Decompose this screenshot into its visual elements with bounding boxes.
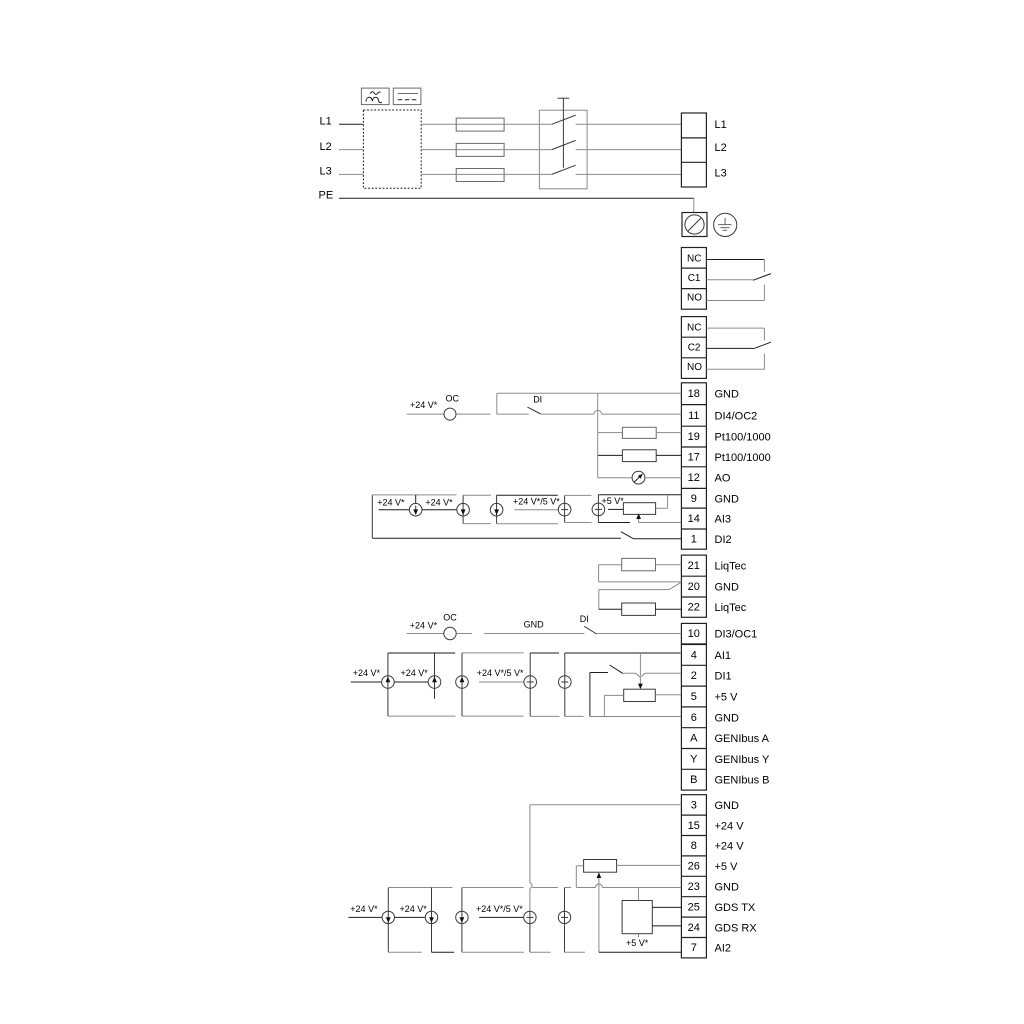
svg-text:8: 8 — [691, 840, 697, 852]
svg-text:+24 V*: +24 V* — [350, 904, 378, 914]
svg-text:26: 26 — [688, 861, 700, 873]
svg-text:B: B — [690, 774, 697, 786]
svg-text:15: 15 — [688, 820, 700, 832]
svg-text:GND: GND — [715, 800, 740, 812]
svg-text:+24 V*: +24 V* — [377, 498, 405, 508]
svg-text:DI1: DI1 — [715, 671, 732, 683]
svg-text:+5 V: +5 V — [715, 692, 739, 704]
svg-text:9: 9 — [691, 493, 697, 505]
svg-text:5: 5 — [691, 691, 697, 703]
svg-text:DI: DI — [580, 614, 589, 624]
svg-text:+24 V: +24 V — [715, 820, 745, 832]
svg-text:25: 25 — [688, 901, 700, 913]
svg-text:21: 21 — [688, 560, 700, 572]
svg-text:A: A — [690, 733, 698, 745]
svg-text:1: 1 — [691, 534, 697, 546]
svg-text:GND: GND — [715, 712, 740, 724]
svg-text:GDS RX: GDS RX — [715, 922, 758, 934]
svg-text:+24 V*/5 V*: +24 V*/5 V* — [476, 904, 523, 914]
svg-text:AI1: AI1 — [715, 650, 732, 662]
svg-text:+5 V*: +5 V* — [602, 496, 625, 506]
svg-text:4: 4 — [691, 649, 697, 661]
svg-text:GENIbus Y: GENIbus Y — [715, 754, 770, 766]
svg-text:L1: L1 — [715, 119, 727, 131]
svg-text:OC: OC — [443, 612, 457, 622]
svg-text:23: 23 — [688, 881, 700, 893]
svg-text:DI4/OC2: DI4/OC2 — [715, 410, 758, 422]
svg-text:+24 V*/5 V*: +24 V*/5 V* — [477, 668, 524, 678]
svg-text:Pt100/1000: Pt100/1000 — [715, 452, 771, 464]
svg-text:+24 V*: +24 V* — [353, 668, 381, 678]
svg-text:LiqTec: LiqTec — [715, 561, 747, 573]
svg-text:C1: C1 — [688, 273, 701, 284]
svg-text:GND: GND — [715, 493, 740, 505]
svg-text:+24 V*: +24 V* — [425, 498, 453, 508]
svg-text:+5 V*: +5 V* — [626, 938, 649, 948]
svg-text:18: 18 — [688, 388, 700, 400]
svg-text:+24 V*: +24 V* — [410, 621, 438, 631]
svg-text:24: 24 — [688, 922, 700, 934]
svg-text:GDS TX: GDS TX — [715, 902, 756, 914]
svg-text:AI3: AI3 — [715, 514, 732, 526]
svg-text:PE: PE — [319, 190, 334, 202]
svg-text:GND: GND — [715, 882, 740, 894]
svg-text:7: 7 — [691, 942, 697, 954]
svg-text:14: 14 — [688, 513, 700, 525]
svg-text:GND: GND — [715, 582, 740, 594]
svg-text:L2: L2 — [320, 141, 332, 153]
svg-text:20: 20 — [688, 581, 700, 593]
svg-text:L2: L2 — [715, 142, 727, 154]
svg-text:2: 2 — [691, 670, 697, 682]
svg-text:3: 3 — [691, 799, 697, 811]
svg-text:+5 V: +5 V — [715, 861, 739, 873]
svg-text:DI2: DI2 — [715, 534, 732, 546]
svg-text:17: 17 — [688, 451, 700, 463]
svg-text:L3: L3 — [320, 166, 332, 178]
svg-text:22: 22 — [688, 602, 700, 614]
svg-text:+24 V*: +24 V* — [410, 400, 438, 410]
svg-text:Pt100/1000: Pt100/1000 — [715, 432, 771, 444]
svg-text:AI2: AI2 — [715, 943, 732, 955]
svg-text:GENIbus B: GENIbus B — [715, 775, 770, 787]
svg-text:GND: GND — [524, 620, 545, 630]
svg-text:DI3/OC1: DI3/OC1 — [715, 629, 758, 641]
svg-text:19: 19 — [688, 431, 700, 443]
svg-text:10: 10 — [688, 628, 700, 640]
svg-text:NC: NC — [687, 323, 701, 334]
svg-text:GENIbus A: GENIbus A — [715, 733, 770, 745]
svg-text:NC: NC — [687, 253, 701, 264]
svg-text:12: 12 — [688, 472, 700, 484]
svg-text:Y: Y — [690, 753, 698, 765]
svg-text:L3: L3 — [715, 168, 727, 180]
svg-text:DI: DI — [533, 394, 542, 404]
svg-text:LiqTec: LiqTec — [715, 602, 747, 614]
svg-text:AO: AO — [715, 473, 731, 485]
svg-text:+24 V*: +24 V* — [400, 904, 428, 914]
svg-text:OC: OC — [446, 394, 460, 404]
svg-text:C2: C2 — [688, 342, 701, 353]
svg-text:+24 V: +24 V — [715, 841, 745, 853]
svg-text:L1: L1 — [320, 116, 332, 128]
svg-text:+24 V*: +24 V* — [401, 668, 429, 678]
svg-text:11: 11 — [688, 410, 699, 422]
svg-text:NO: NO — [687, 362, 702, 373]
svg-text:NO: NO — [687, 293, 702, 304]
svg-text:+24 V*/5 V*: +24 V*/5 V* — [513, 497, 560, 507]
svg-text:GND: GND — [715, 389, 740, 401]
svg-text:6: 6 — [691, 712, 697, 724]
